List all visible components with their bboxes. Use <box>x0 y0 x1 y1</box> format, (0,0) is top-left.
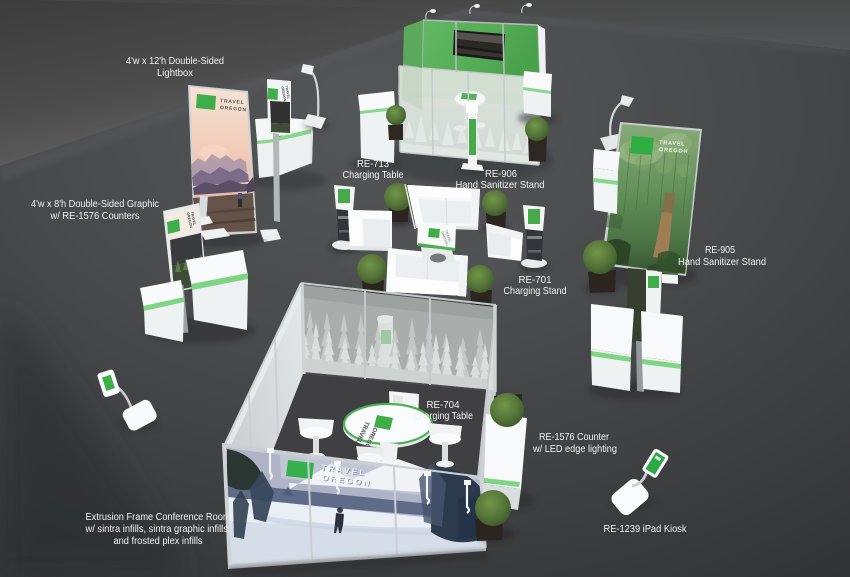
svg-text:RE-1239 iPad Kiosk: RE-1239 iPad Kiosk <box>604 524 688 535</box>
svg-text:RE-704: RE-704 <box>427 400 460 411</box>
svg-text:RE-905: RE-905 <box>705 245 735 256</box>
svg-text:Hand Sanitizer Stand: Hand Sanitizer Stand <box>456 180 545 191</box>
svg-text:w/ sintra infills, sintra grap: w/ sintra infills, sintra graphic infill… <box>85 524 231 535</box>
svg-text:Lightbox: Lightbox <box>157 68 193 79</box>
svg-text:4'w x 8'h Double-Sided Graphic: 4'w x 8'h Double-Sided Graphic <box>31 199 159 210</box>
svg-text:w/ RE-1576 Counters: w/ RE-1576 Counters <box>50 211 140 222</box>
svg-text:Charging Table: Charging Table <box>343 170 404 181</box>
svg-text:Hand Sanitizer Stand: Hand Sanitizer Stand <box>678 257 766 268</box>
svg-text:RE-1576 Counter: RE-1576 Counter <box>539 432 610 443</box>
svg-text:4'w x 12'h Double-Sided: 4'w x 12'h Double-Sided <box>126 56 224 67</box>
svg-text:Extrusion Frame Conference Roo: Extrusion Frame Conference Room <box>86 512 231 523</box>
svg-text:and frosted plex infills: and frosted plex infills <box>114 536 203 547</box>
svg-text:Charging Stand: Charging Stand <box>504 286 567 297</box>
svg-text:Charging Table: Charging Table <box>413 411 473 422</box>
svg-text:RE-713: RE-713 <box>357 159 389 170</box>
svg-text:RE-906: RE-906 <box>485 169 517 180</box>
svg-text:w/ LED edge lighting: w/ LED edge lighting <box>532 444 617 455</box>
svg-text:RE-701: RE-701 <box>519 275 552 286</box>
